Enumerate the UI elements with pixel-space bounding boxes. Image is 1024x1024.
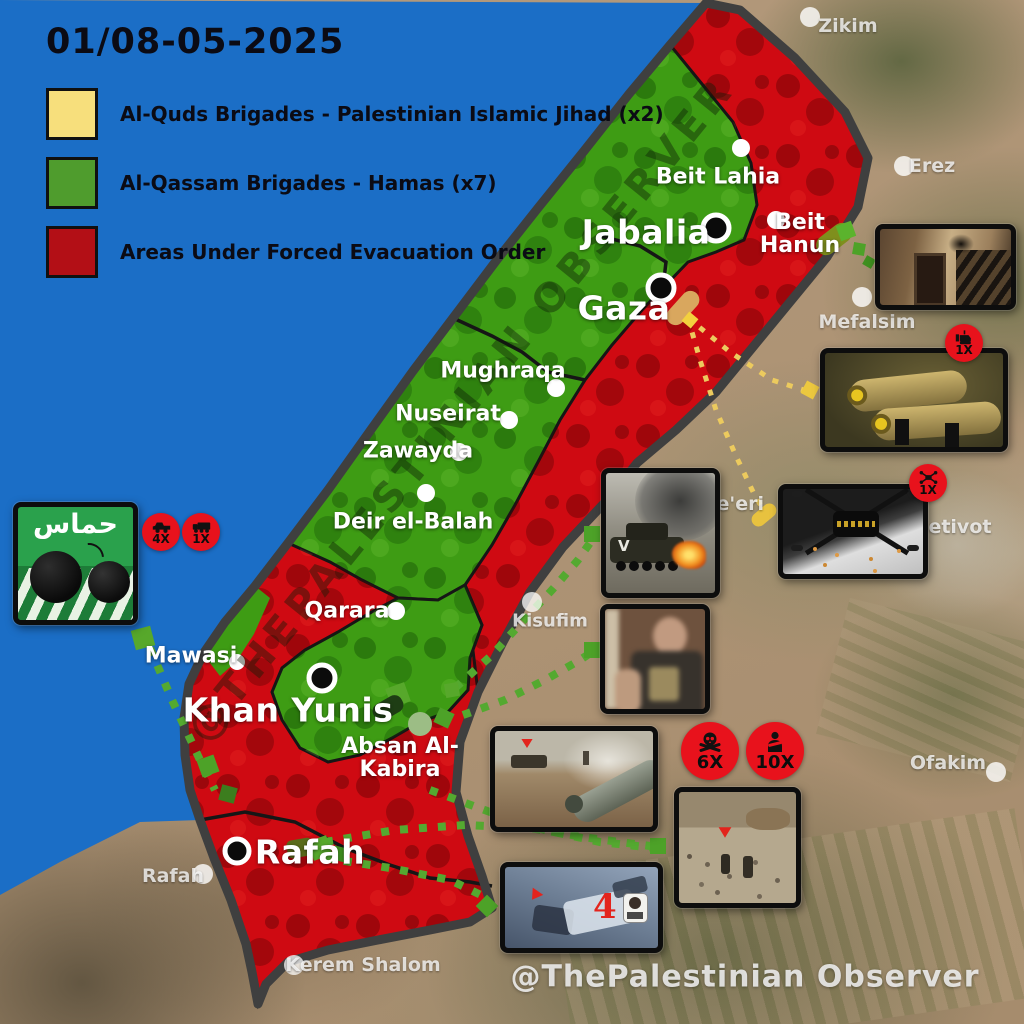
legend-swatch-yellow [46, 88, 98, 140]
town-label-mefalsim: Mefalsim [818, 313, 915, 333]
badge-count: 1X [919, 484, 937, 496]
town-label-zikim: Zikim [818, 17, 877, 37]
bomb-stand [945, 423, 959, 449]
photo-night-vision-vehicle: 4 [500, 862, 663, 953]
city-dot-rafah [225, 839, 249, 863]
marker-circle [408, 712, 432, 736]
gaza-situation-map: @THEPALESTINIAN OBSERVER Beit Lahia Jaba… [0, 0, 1024, 1024]
town-dot-ofakim [986, 762, 1006, 782]
town-dot-qarara [387, 602, 405, 620]
bottom-watermark: @ThePalestinian Observer [510, 960, 979, 995]
vest-pouch [649, 667, 679, 701]
legend-label: Areas Under Forced Evacuation Order [120, 240, 545, 264]
fire [672, 541, 706, 569]
red-marker-triangle [521, 739, 532, 748]
skull-icon [696, 730, 724, 754]
marker-square [852, 242, 866, 256]
rubble-mound [746, 808, 790, 830]
stairwell-dark-object [948, 234, 974, 254]
casualty-number: 4 [593, 887, 617, 927]
city-label-mawasi: Mawasi [145, 644, 238, 667]
photo-burning-tank: V [601, 468, 720, 598]
photo-soldiers-in-rubble [674, 787, 801, 908]
marker-square [584, 526, 600, 542]
city-label-zawayda: Zawayda [363, 439, 473, 462]
drone-rotor [907, 545, 919, 551]
city-label-mughraqa: Mughraqa [440, 359, 565, 382]
badge-truck-destroyed: 1X [182, 513, 220, 551]
red-marker-triangle [719, 827, 732, 837]
tank-v-marking: V [618, 537, 630, 555]
photo-ied-mines-on-flag: حماس [13, 502, 138, 625]
city-label-qarara: Qarara [305, 599, 390, 622]
legend-swatch-red [46, 226, 98, 278]
bomb-nose [870, 413, 891, 434]
red-marker-triangle [527, 888, 543, 904]
photo-aerial-bombs [820, 348, 1008, 452]
legend-swatch-green [46, 157, 98, 209]
date-title: 01/08-05-2025 [46, 22, 686, 62]
drone-rotor [791, 545, 803, 551]
town-label-kisufim: Kisufim [512, 613, 588, 632]
legend-label: Al-Quds Brigades - Palestinian Islamic J… [120, 102, 664, 126]
badge-injured-count: 10X [746, 722, 804, 780]
photo-rpg-aimed-at-tank [490, 726, 658, 832]
marker-square [584, 642, 600, 658]
badge-count: 6X [697, 754, 723, 772]
badge-bulldozer-destroyed: 1X [945, 324, 983, 362]
photo-quadcopter-drone [778, 484, 928, 579]
city-label-beit-hanun: Beit Hanun [754, 211, 846, 257]
town-dot-beit-lahia [732, 139, 750, 157]
badge-drone-downed: 1X [909, 464, 947, 502]
badge-count: 1X [955, 344, 973, 356]
soldier-silhouette [743, 856, 753, 878]
badge-jeep-destroyed: 4X [142, 513, 180, 551]
city-label-nuseirat: Nuseirat [395, 402, 501, 425]
city-label-rafah: Rafah [255, 836, 365, 871]
tank-turret [626, 523, 668, 540]
tank-wheels [616, 561, 626, 571]
distant-soldier [583, 751, 589, 765]
dome-mine [88, 561, 130, 603]
flag-calligraphy: حماس [18, 509, 133, 540]
soldier-icon-tag [627, 912, 643, 919]
badge-count: 10X [756, 754, 795, 772]
stairwell-door [914, 253, 946, 306]
legend-panel: 01/08-05-2025 Al-Quds Brigades - Palesti… [46, 22, 686, 295]
blurred-figure [605, 609, 705, 709]
marker-square [650, 838, 666, 854]
town-label-erez: Erez [909, 157, 955, 177]
soldier-head [653, 617, 687, 655]
city-dot-khan-yunis [309, 665, 335, 691]
dome-mine [30, 551, 82, 603]
legend-item-evacuation: Areas Under Forced Evacuation Order [46, 226, 686, 278]
badge-count: 1X [192, 533, 210, 545]
city-label-absan-al-kabira: Absan Al-Kabira [340, 735, 460, 781]
distant-tank [511, 755, 547, 768]
alquds-marker-bombs [801, 381, 820, 400]
legend-item-alquds: Al-Quds Brigades - Palestinian Islamic J… [46, 88, 686, 140]
drone-orange-markings [813, 547, 817, 551]
city-label-khan-yunis: Khan Yunis [183, 694, 394, 729]
stairwell-stairs [956, 250, 1011, 305]
soldier-icon-head [629, 897, 641, 909]
city-label-gaza: Gaza [578, 292, 671, 327]
town-dot-mefalsim [852, 287, 872, 307]
town-dot-kisufim [522, 592, 542, 612]
soldier-silhouette [721, 854, 730, 874]
drone-gold-band [837, 521, 875, 527]
town-label-rafah-egypt: Rafah [142, 867, 204, 887]
photo-soldier-portrait [600, 604, 710, 714]
rubble-speckles [687, 854, 692, 859]
rpg-warhead [565, 795, 583, 813]
town-label-kerem-shalom: Kerem Shalom [285, 956, 440, 976]
injured-person-icon [761, 730, 789, 754]
legend-label: Al-Qassam Brigades - Hamas (x7) [120, 171, 497, 195]
badge-count: 4X [152, 533, 170, 545]
city-label-deir-el-balah: Deir el-Balah [333, 510, 494, 533]
legend-item-alqassam: Al-Qassam Brigades - Hamas (x7) [46, 157, 686, 209]
bomb-stand [895, 419, 909, 445]
badge-killed-count: 6X [681, 722, 739, 780]
bomb-nose [846, 384, 868, 406]
marker-square [862, 255, 876, 269]
marker-square [444, 682, 460, 698]
drone-rotor [791, 491, 803, 497]
town-dot-nuseirat [500, 411, 518, 429]
soldier-arm [615, 669, 641, 713]
soldier-icon [623, 893, 648, 923]
photo-stairwell-interior [875, 224, 1016, 310]
town-label-ofakim: Ofakim [910, 754, 986, 774]
town-dot-zikim [800, 7, 820, 27]
